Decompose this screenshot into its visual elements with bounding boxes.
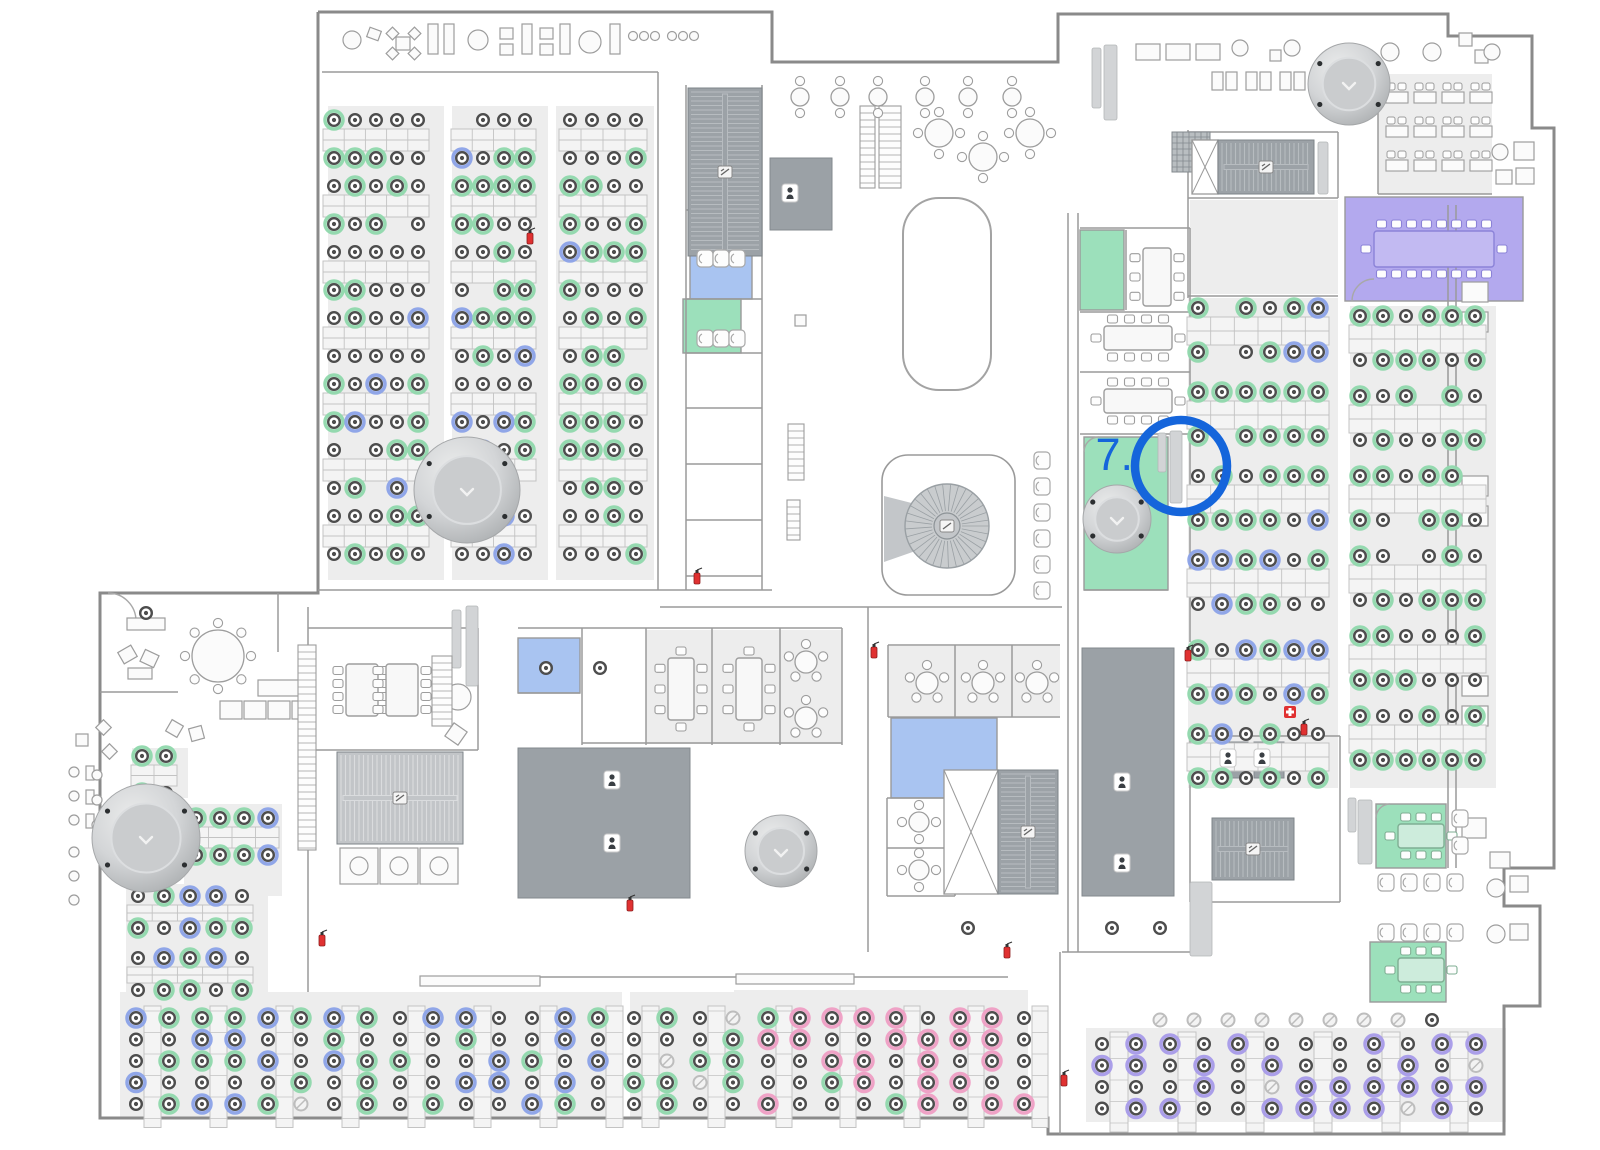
fire-extinguisher-icon — [871, 642, 879, 658]
furniture-item — [390, 857, 408, 875]
shelf — [879, 106, 901, 188]
furniture-item — [350, 857, 368, 875]
furniture-item — [92, 770, 102, 780]
furniture-item — [1490, 852, 1510, 868]
room-green-topright — [1080, 230, 1124, 310]
booth-chairs — [1034, 452, 1050, 599]
wall-panel — [1170, 431, 1182, 503]
door-arc — [108, 593, 136, 621]
wall-panel — [466, 606, 478, 686]
furniture-item — [1496, 170, 1512, 184]
furniture-item — [540, 28, 553, 39]
furniture-item — [1136, 44, 1160, 60]
furniture-item — [540, 44, 553, 55]
first-aid-icon — [1284, 706, 1296, 718]
furniture-item — [430, 857, 448, 875]
wall-panel — [452, 610, 461, 668]
staircase — [1212, 818, 1294, 880]
furniture-item — [444, 24, 454, 54]
furniture-item — [1514, 142, 1534, 160]
wall-panel — [1104, 45, 1117, 120]
fire-extinguisher-icon — [1061, 1070, 1069, 1086]
shelf — [860, 106, 875, 188]
round-table — [791, 76, 809, 117]
round-table — [831, 76, 849, 117]
x-braced-shaft — [944, 770, 998, 894]
conference-table — [373, 664, 431, 716]
furniture-item — [69, 791, 79, 801]
furniture-item — [668, 32, 677, 41]
furniture-item — [420, 976, 540, 986]
furniture-item — [560, 24, 570, 54]
furniture-item — [468, 30, 488, 50]
furniture-item — [1270, 50, 1281, 61]
furniture-item — [1246, 72, 1257, 90]
conference-table — [1091, 315, 1185, 361]
wall-panel — [1348, 798, 1356, 832]
office-floor-plan: 7. — [0, 0, 1600, 1150]
floor-plan-canvas: 7. — [0, 0, 1600, 1150]
furniture-item — [1423, 43, 1441, 61]
furniture-item — [1232, 40, 1248, 56]
round-table — [180, 618, 255, 693]
furniture-item — [343, 31, 361, 49]
furniture-item — [69, 871, 79, 881]
furniture-item — [795, 315, 806, 326]
round-table — [957, 131, 1008, 182]
furniture-item — [69, 895, 79, 905]
furniture-item — [128, 668, 152, 679]
furniture-item — [651, 32, 660, 41]
person-icon — [604, 771, 620, 789]
furniture-item — [69, 847, 79, 857]
round-table — [897, 848, 940, 891]
furniture-item — [220, 701, 242, 719]
furniture-item — [76, 734, 88, 746]
shelf — [787, 500, 800, 540]
x-braced-shaft — [1192, 140, 1218, 194]
conference-table — [1130, 248, 1184, 306]
person-icon — [782, 184, 798, 202]
furniture-item — [1516, 168, 1534, 184]
booth-chairs — [697, 250, 745, 267]
furniture-item — [396, 37, 410, 50]
furniture-item — [679, 32, 688, 41]
furniture-item — [1487, 925, 1505, 943]
furniture-item — [1212, 72, 1223, 90]
fire-extinguisher-icon — [1004, 942, 1012, 958]
desk-grid — [1154, 1014, 1438, 1027]
wall-panel — [1158, 433, 1166, 472]
desk-grid — [127, 1006, 623, 1128]
furniture-item — [1196, 44, 1220, 60]
furniture-item — [1284, 40, 1300, 56]
furniture-item — [428, 24, 438, 54]
furniture-item — [610, 24, 620, 54]
furniture-item — [522, 24, 532, 54]
furniture-item — [1459, 33, 1472, 46]
viewpoint-sphere — [745, 815, 817, 887]
furniture-item — [69, 815, 79, 825]
furniture-item — [1166, 44, 1190, 60]
round-table — [916, 76, 934, 117]
furniture-item — [92, 795, 102, 805]
staircase — [337, 752, 463, 844]
furniture-item — [736, 974, 854, 984]
utility-room — [770, 158, 832, 230]
furniture-item — [1484, 44, 1500, 60]
furniture-item — [102, 744, 118, 760]
round-table — [897, 800, 940, 843]
furniture-item — [140, 649, 159, 667]
viewpoint-sphere — [414, 437, 520, 543]
furniture-item — [268, 701, 290, 719]
furniture-item — [1280, 72, 1291, 90]
furniture-item — [690, 32, 699, 41]
furniture-item — [500, 28, 513, 39]
person-icon — [1114, 773, 1130, 791]
furniture-item — [244, 701, 266, 719]
person-icon — [1254, 749, 1270, 767]
shelf — [298, 645, 316, 850]
utility-room — [518, 748, 690, 898]
round-table — [959, 76, 977, 117]
fire-extinguisher-icon — [319, 930, 327, 946]
staircase — [688, 88, 762, 256]
booth-chairs — [1378, 924, 1463, 941]
wall-panel — [1190, 882, 1212, 956]
furniture-item — [1294, 72, 1305, 90]
furniture-item — [1510, 876, 1528, 892]
spiral-staircase — [882, 455, 1015, 595]
shelf — [788, 424, 804, 480]
furniture-item — [118, 645, 137, 664]
furniture-item — [579, 31, 601, 53]
furniture-item — [629, 32, 638, 41]
shelf — [432, 656, 452, 726]
furniture-item — [69, 767, 79, 777]
furniture-item — [1462, 282, 1488, 302]
furniture-item — [1510, 924, 1528, 940]
staircase — [998, 770, 1058, 894]
furniture-item — [1260, 72, 1271, 90]
furniture-item — [500, 44, 513, 55]
furniture-item — [1381, 43, 1399, 61]
person-icon — [604, 834, 620, 852]
furniture-item — [1226, 72, 1237, 90]
furniture-item — [1487, 879, 1505, 897]
booth-chairs — [697, 330, 745, 347]
wall-panel — [1092, 48, 1101, 108]
viewpoint-sphere — [1308, 43, 1390, 125]
furniture-item — [1492, 144, 1508, 160]
furniture-item — [640, 32, 649, 41]
annotation-label-7: 7. — [1095, 429, 1133, 480]
staircase — [1218, 140, 1314, 194]
booth-chairs — [1378, 874, 1463, 891]
round-table — [1003, 76, 1021, 117]
viewpoint-sphere — [92, 784, 200, 892]
person-icon — [1114, 854, 1130, 872]
wall-panel — [1318, 142, 1328, 194]
person-icon — [1220, 749, 1236, 767]
furniture-item — [166, 720, 184, 738]
furniture-item — [189, 726, 205, 742]
furniture-item — [96, 720, 112, 736]
furniture-item — [367, 27, 382, 41]
curved-wall — [903, 198, 991, 390]
floor-panel — [1190, 200, 1338, 294]
wall-panel — [1358, 800, 1372, 864]
